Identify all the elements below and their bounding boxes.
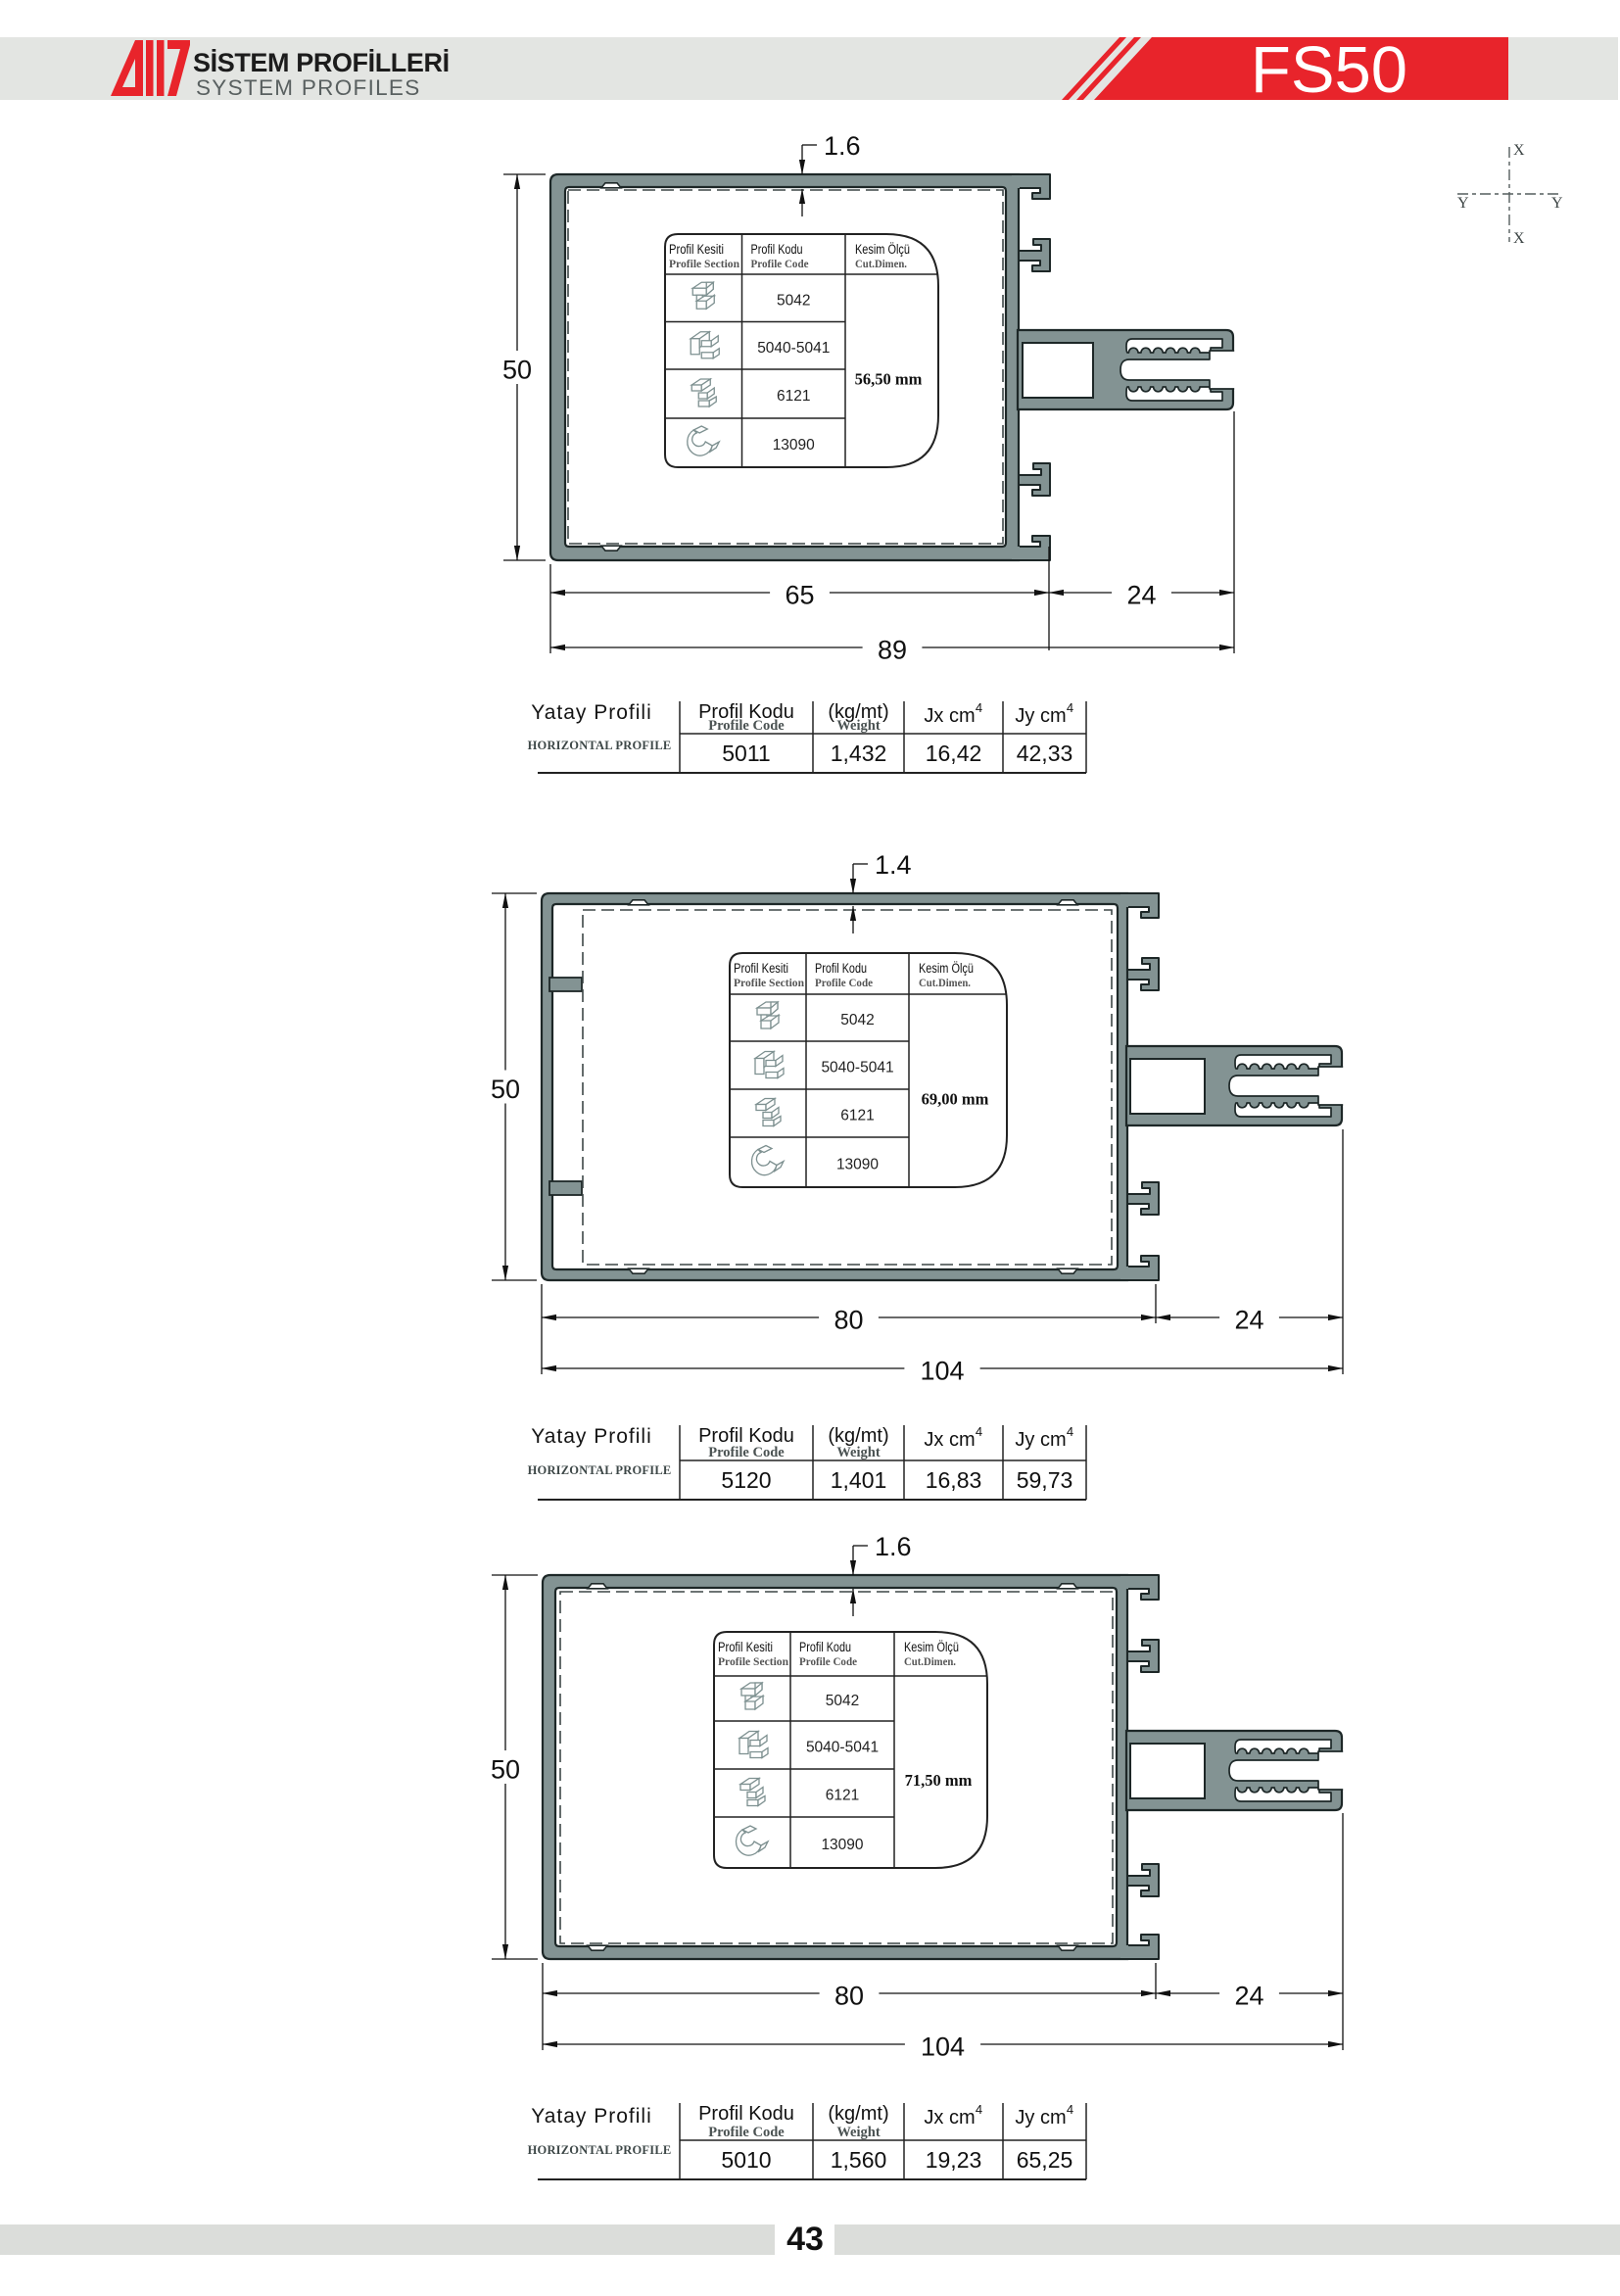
svg-text:5042: 5042 <box>840 1012 874 1028</box>
svg-text:(kg/mt): (kg/mt) <box>828 2103 888 2125</box>
svg-text:Profil Kodu: Profil Kodu <box>815 961 867 976</box>
svg-text:Cut.Dimen.: Cut.Dimen. <box>904 1654 956 1668</box>
svg-text:Profil Kodu: Profil Kodu <box>751 242 803 257</box>
svg-text:71,50 mm: 71,50 mm <box>905 1771 973 1790</box>
svg-text:Kesim Ölçü: Kesim Ölçü <box>919 961 974 976</box>
svg-text:6121: 6121 <box>777 388 810 405</box>
svg-text:SYSTEM PROFILES: SYSTEM PROFILES <box>196 75 421 100</box>
svg-text:13090: 13090 <box>773 437 815 454</box>
svg-text:Profile Code: Profile Code <box>799 1654 858 1668</box>
svg-text:6121: 6121 <box>826 1788 859 1804</box>
svg-text:19,23: 19,23 <box>926 2147 982 2173</box>
svg-text:50: 50 <box>491 1075 520 1104</box>
svg-text:16,42: 16,42 <box>926 741 982 766</box>
svg-text:(kg/mt): (kg/mt) <box>828 1425 888 1447</box>
svg-text:69,00 mm: 69,00 mm <box>922 1090 989 1109</box>
svg-text:5042: 5042 <box>826 1693 859 1709</box>
svg-text:Profile Code: Profile Code <box>751 257 810 270</box>
svg-text:Cut.Dimen.: Cut.Dimen. <box>855 257 907 270</box>
svg-text:Jy cm: Jy cm <box>1015 1429 1066 1451</box>
svg-text:13090: 13090 <box>836 1157 879 1173</box>
svg-text:Yatay Profili: Yatay Profili <box>531 2105 652 2128</box>
svg-text:59,73: 59,73 <box>1017 1467 1073 1493</box>
svg-text:24: 24 <box>1126 581 1156 610</box>
svg-text:Profile Section: Profile Section <box>734 976 804 989</box>
svg-text:HORIZONTAL PROFILE: HORIZONTAL PROFILE <box>528 739 672 752</box>
svg-text:42,33: 42,33 <box>1017 741 1073 766</box>
svg-text:1.6: 1.6 <box>824 131 861 161</box>
svg-text:Profile Code: Profile Code <box>708 718 785 734</box>
svg-text:Jx cm: Jx cm <box>924 1429 975 1451</box>
svg-text:89: 89 <box>878 636 907 665</box>
svg-text:X: X <box>1513 142 1525 159</box>
svg-text:6121: 6121 <box>840 1108 874 1124</box>
svg-text:Profile Section: Profile Section <box>669 257 739 270</box>
svg-text:104: 104 <box>921 2033 965 2062</box>
svg-text:Profil Kodu: Profil Kodu <box>698 1425 794 1447</box>
svg-text:4: 4 <box>976 1424 982 1439</box>
svg-text:5040-5041: 5040-5041 <box>806 1740 879 1756</box>
svg-text:5040-5041: 5040-5041 <box>821 1060 893 1076</box>
svg-text:5042: 5042 <box>777 292 810 309</box>
svg-text:Jy cm: Jy cm <box>1015 2107 1066 2129</box>
svg-text:Weight: Weight <box>836 718 880 734</box>
svg-text:5120: 5120 <box>721 1467 771 1493</box>
svg-text:5040-5041: 5040-5041 <box>757 340 830 357</box>
svg-text:50: 50 <box>502 356 532 385</box>
svg-text:56,50 mm: 56,50 mm <box>855 370 923 389</box>
svg-text:43: 43 <box>786 2221 824 2258</box>
svg-text:Yatay Profili: Yatay Profili <box>531 1425 652 1448</box>
svg-text:65: 65 <box>785 581 814 610</box>
svg-text:Jx cm: Jx cm <box>924 2107 975 2129</box>
svg-text:Weight: Weight <box>836 2125 880 2140</box>
svg-text:X: X <box>1513 230 1525 247</box>
svg-text:Profil Kesiti: Profil Kesiti <box>669 242 724 257</box>
svg-text:SİSTEM PROFİLLERİ: SİSTEM PROFİLLERİ <box>193 48 450 77</box>
svg-text:Weight: Weight <box>836 1445 880 1460</box>
svg-text:80: 80 <box>834 1982 864 2011</box>
svg-text:Profil Kodu: Profil Kodu <box>799 1640 851 1654</box>
svg-text:Jy cm: Jy cm <box>1015 705 1066 727</box>
svg-text:1,560: 1,560 <box>831 2147 887 2173</box>
svg-text:Jx cm: Jx cm <box>924 705 975 727</box>
svg-text:104: 104 <box>920 1357 964 1386</box>
svg-text:Y: Y <box>1551 195 1563 212</box>
svg-text:50: 50 <box>491 1755 520 1785</box>
svg-text:FS50: FS50 <box>1251 33 1407 107</box>
svg-text:1,432: 1,432 <box>831 741 887 766</box>
svg-text:Profile Code: Profile Code <box>815 976 874 989</box>
svg-text:4: 4 <box>1067 2102 1073 2117</box>
svg-text:Profil Kesiti: Profil Kesiti <box>734 961 788 976</box>
svg-text:5011: 5011 <box>722 741 770 766</box>
svg-text:Kesim Ölçü: Kesim Ölçü <box>855 242 910 257</box>
svg-text:Profile Code: Profile Code <box>708 1445 785 1460</box>
svg-text:Profile Code: Profile Code <box>708 2125 785 2140</box>
svg-text:65,25: 65,25 <box>1017 2147 1073 2173</box>
svg-text:5010: 5010 <box>721 2147 771 2173</box>
svg-text:80: 80 <box>834 1306 863 1335</box>
svg-text:24: 24 <box>1234 1306 1263 1335</box>
svg-text:Kesim Ölçü: Kesim Ölçü <box>904 1640 959 1654</box>
svg-text:Yatay Profili: Yatay Profili <box>531 701 652 724</box>
svg-text:Y: Y <box>1457 195 1469 212</box>
svg-text:4: 4 <box>1067 1424 1073 1439</box>
svg-text:Profil Kesiti: Profil Kesiti <box>718 1640 773 1654</box>
svg-text:13090: 13090 <box>821 1837 863 1853</box>
svg-text:4: 4 <box>976 700 982 715</box>
svg-text:1.4: 1.4 <box>875 850 912 880</box>
svg-text:4: 4 <box>1067 700 1073 715</box>
svg-text:Cut.Dimen.: Cut.Dimen. <box>919 976 971 989</box>
svg-text:4: 4 <box>976 2102 982 2117</box>
svg-text:HORIZONTAL PROFILE: HORIZONTAL PROFILE <box>528 1463 672 1477</box>
svg-text:24: 24 <box>1234 1982 1263 2011</box>
svg-text:1.6: 1.6 <box>875 1532 912 1561</box>
svg-text:Profil Kodu: Profil Kodu <box>698 2103 794 2125</box>
svg-text:16,83: 16,83 <box>926 1467 982 1493</box>
svg-text:HORIZONTAL PROFILE: HORIZONTAL PROFILE <box>528 2143 672 2157</box>
svg-text:Profile Section: Profile Section <box>718 1654 788 1668</box>
svg-text:1,401: 1,401 <box>831 1467 887 1493</box>
